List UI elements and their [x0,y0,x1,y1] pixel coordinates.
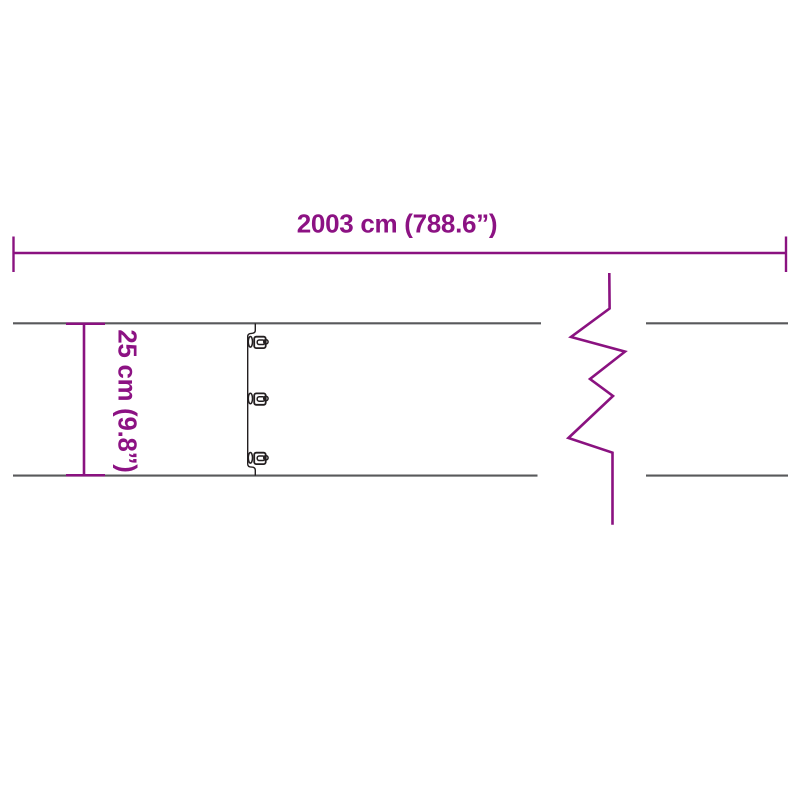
svg-text:25 cm (9.8”): 25 cm (9.8”) [113,329,141,472]
svg-text:2003 cm (788.6”): 2003 cm (788.6”) [297,209,497,239]
